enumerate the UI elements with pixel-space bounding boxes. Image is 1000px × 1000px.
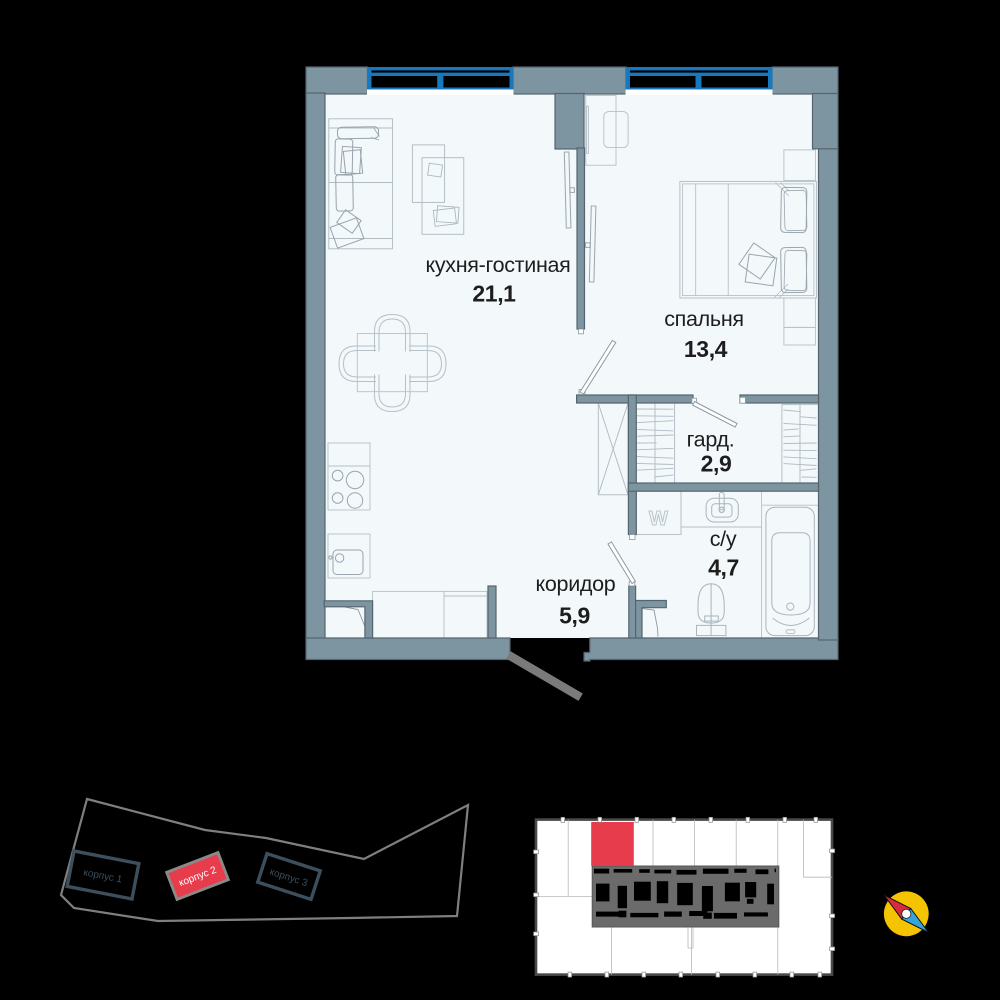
svg-text:коридор: коридор	[536, 572, 616, 596]
svg-text:гард.: гард.	[687, 428, 735, 452]
svg-text:4,7: 4,7	[708, 555, 739, 581]
svg-text:2,9: 2,9	[701, 451, 732, 477]
svg-text:с/у: с/у	[710, 527, 737, 551]
svg-text:21,1: 21,1	[472, 281, 516, 307]
svg-text:спальня: спальня	[664, 307, 744, 331]
svg-text:W: W	[649, 508, 668, 530]
svg-text:13,4: 13,4	[684, 336, 728, 362]
svg-text:5,9: 5,9	[559, 603, 590, 629]
svg-text:кухня-гостиная: кухня-гостиная	[425, 253, 570, 277]
